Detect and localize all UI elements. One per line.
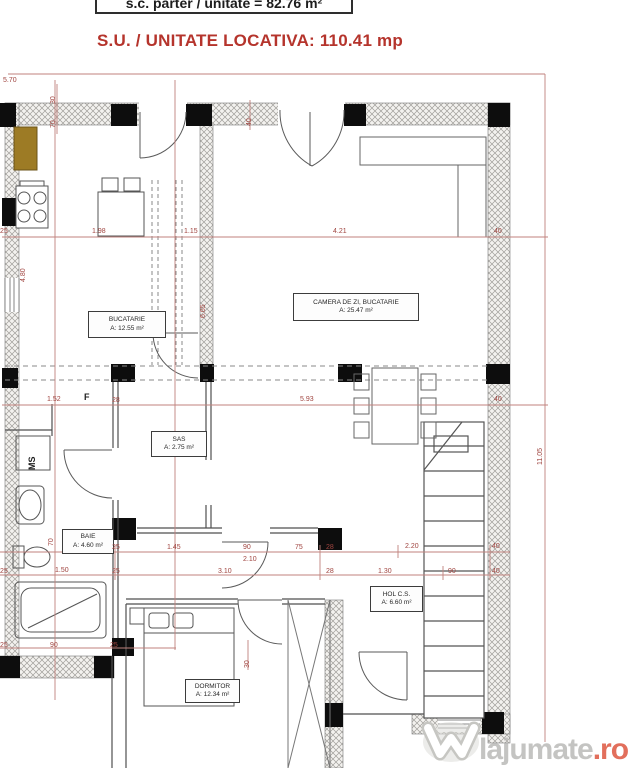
watermark-tld: .ro bbox=[593, 733, 628, 766]
room-name: DORMITOR bbox=[195, 683, 230, 691]
room-label-hol: HOL C.S.A: 6.60 m² bbox=[370, 586, 423, 612]
room-name: CAMERA DE ZI, BUCATARIE bbox=[313, 299, 399, 307]
dimension-text: 30 bbox=[244, 660, 251, 668]
dimension-text: 1.98 bbox=[92, 228, 106, 235]
floor-plan-page: s.c. parter / unitate = 82.76 m² S.U. / … bbox=[0, 0, 640, 768]
dimension-text: 3.10 bbox=[218, 568, 232, 575]
kitchen-fixtures bbox=[14, 127, 144, 236]
dimension-text: 28 bbox=[326, 568, 334, 575]
dimension-text: 25 bbox=[112, 544, 120, 551]
watermark: lajumate.ro bbox=[479, 733, 628, 767]
plan-info-text: s.c. parter / unitate = 82.76 m² bbox=[126, 0, 322, 11]
room-label-sas: SASA: 2.75 m² bbox=[151, 431, 207, 457]
dimension-text: 40 bbox=[492, 568, 500, 575]
cabinet-brown bbox=[14, 127, 37, 170]
sofa bbox=[360, 137, 486, 165]
room-area: A: 6.60 m² bbox=[382, 599, 412, 607]
dimension-text: 75 bbox=[295, 544, 303, 551]
dimension-text: 70 bbox=[48, 538, 55, 546]
dimension-text: 40 bbox=[492, 543, 500, 550]
dimension-text: 25 bbox=[0, 642, 8, 649]
dimension-text: 90 bbox=[243, 544, 251, 551]
sink bbox=[16, 486, 44, 524]
dimension-text: 30 bbox=[50, 96, 57, 104]
dimension-text: 25 bbox=[0, 228, 8, 235]
dimension-text: 1.45 bbox=[167, 544, 181, 551]
annotation-ms: MS bbox=[28, 457, 37, 471]
dimension-text: 1.30 bbox=[378, 568, 392, 575]
room-area: A: 12.34 m² bbox=[196, 691, 230, 699]
floor-plan-drawing bbox=[0, 0, 640, 768]
room-area: A: 12.55 m² bbox=[110, 325, 144, 333]
dimension-text: 5.93 bbox=[300, 396, 314, 403]
lajumate-logo-icon bbox=[420, 718, 482, 766]
plan-info-box: s.c. parter / unitate = 82.76 m² bbox=[95, 0, 353, 14]
room-name: SAS bbox=[172, 436, 185, 444]
dimension-text: 90 bbox=[448, 568, 456, 575]
dimension-text: 5.70 bbox=[3, 77, 17, 84]
annotation-f: F bbox=[84, 393, 90, 402]
dimension-text: 4.80 bbox=[20, 268, 27, 282]
dimension-text: 25 bbox=[0, 568, 8, 575]
dimension-text: 25 bbox=[112, 568, 120, 575]
room-label-camera-de-zi: CAMERA DE ZI, BUCATARIEA: 25.47 m² bbox=[293, 293, 419, 321]
dimension-text: 25 bbox=[110, 642, 118, 649]
dimension-text: 1.52 bbox=[47, 396, 61, 403]
room-label-bucatarie: BUCATARIEA: 12.55 m² bbox=[88, 311, 166, 338]
dimension-text: 40 bbox=[494, 228, 502, 235]
dimension-text: 28 bbox=[112, 397, 120, 404]
dimension-text: 4.21 bbox=[333, 228, 347, 235]
dimension-text: 6.65 bbox=[200, 304, 207, 318]
dimension-text: 28 bbox=[326, 544, 334, 551]
room-label-baie: BAIEA: 4.60 m² bbox=[62, 529, 114, 554]
dimension-text: 90 bbox=[50, 642, 58, 649]
dimension-text: 2.20 bbox=[405, 543, 419, 550]
living-furniture bbox=[354, 137, 486, 444]
page-title: S.U. / UNITATE LOCATIVA: 110.41 mp bbox=[97, 31, 457, 51]
dimension-text: 70 bbox=[50, 120, 57, 128]
room-area: A: 25.47 m² bbox=[339, 307, 373, 315]
dimension-text: 40 bbox=[494, 396, 502, 403]
room-name: BAIE bbox=[81, 533, 96, 541]
room-name: BUCATARIE bbox=[109, 316, 145, 324]
dimension-text: 1.15 bbox=[184, 228, 198, 235]
dimension-text: 11.05 bbox=[537, 448, 544, 465]
dimension-text: 40 bbox=[246, 118, 253, 126]
dimension-text: 1.50 bbox=[55, 567, 69, 574]
window-x-marking bbox=[288, 600, 330, 768]
dimension-text: 2.10 bbox=[243, 556, 257, 563]
room-area: A: 2.75 m² bbox=[164, 444, 194, 452]
room-name: HOL C.S. bbox=[383, 591, 411, 599]
room-label-dormitor: DORMITORA: 12.34 m² bbox=[185, 679, 240, 703]
dining-table bbox=[372, 368, 418, 444]
watermark-brand: lajumate bbox=[479, 733, 593, 766]
bathtub bbox=[15, 582, 106, 638]
room-area: A: 4.60 m² bbox=[73, 542, 103, 550]
